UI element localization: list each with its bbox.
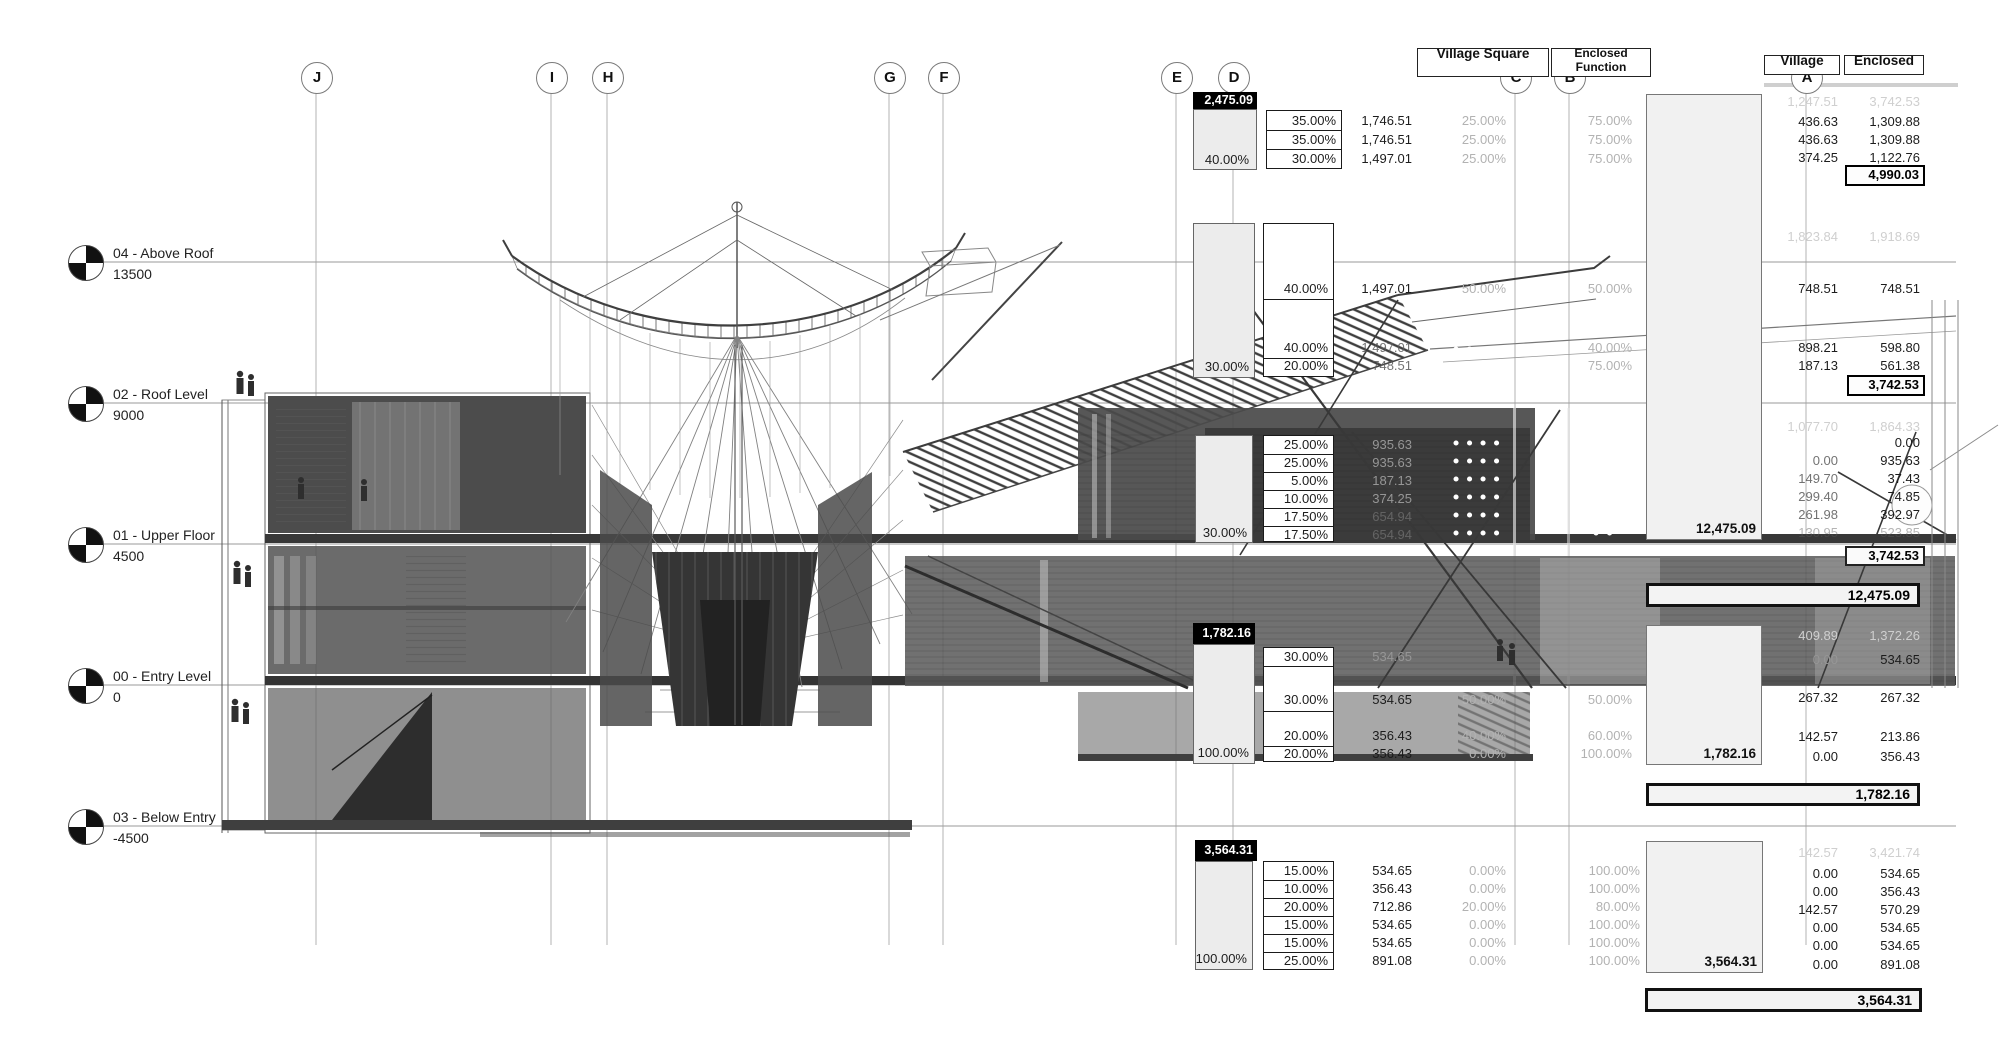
value-cell-occluded: 935.63 — [1322, 437, 1412, 452]
header-village-square: Village Square — [1417, 48, 1549, 77]
column-total: 12,475.09 — [1696, 521, 1756, 536]
header-label: Enclosed Function — [1552, 48, 1650, 74]
pct-cell: 40.00% — [1240, 281, 1328, 296]
header-enclosed-function: Enclosed Function — [1551, 48, 1651, 77]
right-value: 534.65 — [1830, 938, 1920, 953]
pct-cell: 20.00% — [1240, 358, 1328, 373]
faint-subtotal: 3,421.74 — [1830, 845, 1920, 860]
faded-pct: 50.00% — [1542, 281, 1632, 296]
grand-total-box: 1,782.16 — [1646, 783, 1920, 806]
level-head-icon — [68, 386, 104, 422]
right-value: 534.65 — [1830, 866, 1920, 881]
faded-pct: 25.00% — [1416, 113, 1506, 128]
section-view: J I H G F E D C B A 04 - Above Roof 1350… — [0, 0, 2000, 1055]
column-total: 1,782.16 — [1703, 746, 1756, 761]
value-cell: 534.65 — [1322, 692, 1412, 707]
faded-pct: 75.00% — [1542, 113, 1632, 128]
right-value: 267.32 — [1830, 690, 1920, 705]
value-cell: 356.43 — [1322, 746, 1412, 761]
right-value: 561.38 — [1830, 358, 1920, 373]
value-cell-occluded: 534.65 — [1322, 649, 1412, 664]
right-value: 1,309.88 — [1830, 114, 1920, 129]
pct-cell: 5.00% — [1240, 473, 1328, 488]
value-cell: 712.86 — [1322, 899, 1412, 914]
subtotal-box: 3,742.53 — [1845, 546, 1925, 566]
value-cell: 356.43 — [1322, 728, 1412, 743]
level-head-icon — [68, 527, 104, 563]
gray-pct: 100.00% — [1159, 745, 1249, 760]
pct-cell: 15.00% — [1240, 863, 1328, 878]
right-value: 598.80 — [1830, 340, 1920, 355]
faded-pct: 100.00% — [1550, 935, 1640, 950]
pct-cell: 10.00% — [1240, 491, 1328, 506]
grand-total-box: 3,564.31 — [1645, 988, 1922, 1012]
value-cell: 1,497.01 — [1322, 151, 1412, 166]
right-value: 0.00 — [1830, 435, 1920, 450]
area-total-cell: 2,475.09 — [1193, 92, 1257, 109]
value-cell-occluded: 748.51 — [1322, 358, 1412, 373]
value-cell-occluded: 935.63 — [1322, 455, 1412, 470]
level-name: 03 - Below Entry — [113, 809, 216, 825]
faded-pct: 20.00% — [1416, 899, 1506, 914]
level-elevation: 0 — [113, 689, 121, 705]
total-box: 3,742.53 — [1847, 375, 1925, 396]
grid-bubble-f: F — [928, 62, 960, 94]
row-divider — [1264, 711, 1333, 712]
level-name: 04 - Above Roof — [113, 245, 213, 261]
level-name: 02 - Roof Level — [113, 386, 208, 402]
faded-pct: 0.00% — [1416, 881, 1506, 896]
right-value: 1,122.76 — [1830, 150, 1920, 165]
faded-pct: 0.00% — [1416, 863, 1506, 878]
left-building — [222, 393, 590, 833]
value-cell: 1,746.51 — [1322, 113, 1412, 128]
area-column-box: 3,564.31 — [1646, 841, 1763, 973]
pct-cell: 17.50% — [1240, 509, 1328, 524]
faded-pct: 0.00% — [1416, 953, 1506, 968]
header-label: Enclosed — [1845, 55, 1923, 68]
gray-pct: 30.00% — [1159, 359, 1249, 374]
right-value: 37.43 — [1830, 471, 1920, 486]
faded-pct: 80.00% — [1550, 899, 1640, 914]
faded-pct: 100.00% — [1550, 881, 1640, 896]
area-column-box: 12,475.09 — [1646, 94, 1762, 540]
faded-pct: 75.00% — [1542, 132, 1632, 147]
column-total: 3,564.31 — [1704, 954, 1757, 969]
faint-subtotal: 1,918.69 — [1830, 229, 1920, 244]
level-name: 00 - Entry Level — [113, 668, 211, 684]
faded-pct: 100.00% — [1550, 917, 1640, 932]
right-value: 891.08 — [1830, 957, 1920, 972]
pct-cell: 15.00% — [1240, 935, 1328, 950]
value-cell: 534.65 — [1322, 935, 1412, 950]
row-divider — [1267, 130, 1341, 131]
faded-pct: 40.00% — [1416, 728, 1506, 743]
faded-pct: 40.00% — [1542, 340, 1632, 355]
right-value: 534.65 — [1830, 920, 1920, 935]
right-value: 74.85 — [1830, 489, 1920, 504]
row-divider — [1267, 149, 1341, 150]
faded-pct: 100.00% — [1550, 953, 1640, 968]
value-cell-occluded: 1,497.01 — [1322, 340, 1412, 355]
value-cell: 891.08 — [1322, 953, 1412, 968]
level-head-icon — [68, 809, 104, 845]
value-cell: 534.65 — [1322, 863, 1412, 878]
right-value: 213.86 — [1830, 729, 1920, 744]
faded-pct: 75.00% — [1542, 151, 1632, 166]
pct-cell: 40.00% — [1240, 340, 1328, 355]
grid-bubble-i: I — [536, 62, 568, 94]
pct-cell: 25.00% — [1240, 455, 1328, 470]
level-name: 01 - Upper Floor — [113, 527, 215, 543]
value-cell: 534.65 — [1322, 917, 1412, 932]
faded-pct: 50.00% — [1542, 692, 1632, 707]
header-label: Village Square — [1418, 48, 1548, 61]
pct-cell: 30.00% — [1240, 692, 1328, 707]
faded-pct: 60.00% — [1542, 728, 1632, 743]
faded-pct: 75.00% — [1542, 358, 1632, 373]
pct-cell: 15.00% — [1240, 917, 1328, 932]
pct-cell: 30.00% — [1240, 649, 1328, 664]
area-total-cell: 1,782.16 — [1193, 623, 1255, 644]
level-elevation: 13500 — [113, 266, 152, 282]
right-value: 1,309.88 — [1830, 132, 1920, 147]
faded-pct: 50.00% — [1416, 281, 1506, 296]
right-value: 570.29 — [1830, 902, 1920, 917]
right-value: 534.65 — [1830, 652, 1920, 667]
faded-pct: 0.00% — [1416, 917, 1506, 932]
level-elevation: 9000 — [113, 407, 144, 423]
level-elevation: -4500 — [113, 830, 149, 846]
level-head-icon — [68, 245, 104, 281]
grid-bubble-j: J — [301, 62, 333, 94]
right-value: 935.63 — [1830, 453, 1920, 468]
grid-bubble-h: H — [592, 62, 624, 94]
right-value: 356.43 — [1830, 884, 1920, 899]
gray-pct: 30.00% — [1157, 525, 1247, 540]
faded-pct: 25.00% — [1416, 151, 1506, 166]
pct-cell: 25.00% — [1240, 437, 1328, 452]
right-value: 356.43 — [1830, 749, 1920, 764]
area-column-box: 1,782.16 — [1646, 625, 1762, 765]
value-cell-occluded: 187.13 — [1322, 473, 1412, 488]
area-total-cell: 3,564.31 — [1195, 840, 1257, 861]
grid-bubble-g: G — [874, 62, 906, 94]
value-cell-occluded: 654.94 — [1322, 527, 1412, 542]
faint-subtotal: 3,742.53 — [1830, 94, 1920, 109]
level-elevation: 4500 — [113, 548, 144, 564]
total-box: 4,990.03 — [1845, 165, 1925, 186]
faded-pct: 50.00% — [1416, 692, 1506, 707]
faded-pct: 0.00% — [1416, 746, 1506, 761]
value-cell: 1,497.01 — [1322, 281, 1412, 296]
faded-pct: 25.00% — [1416, 132, 1506, 147]
header-village: Village — [1764, 55, 1840, 75]
value-cell: 1,746.51 — [1322, 132, 1412, 147]
pct-cell: 25.00% — [1240, 953, 1328, 968]
value-cell-occluded: 374.25 — [1322, 491, 1412, 506]
faint-subtotal: 1,864.33 — [1830, 419, 1920, 434]
pct-cell: 10.00% — [1240, 881, 1328, 896]
row-divider — [1264, 299, 1333, 300]
gray-pct: 100.00% — [1157, 951, 1247, 966]
faded-pct: 100.00% — [1550, 863, 1640, 878]
right-value: 523.85 — [1830, 525, 1920, 540]
faint-subtotal: 1,372.26 — [1830, 628, 1920, 643]
right-value: 748.51 — [1830, 281, 1920, 296]
grand-total-box: 12,475.09 — [1646, 583, 1920, 607]
value-cell-occluded: 654.94 — [1322, 509, 1412, 524]
header-label: Village — [1765, 55, 1839, 68]
header-enclosed: Enclosed — [1844, 55, 1924, 75]
level-head-icon — [68, 668, 104, 704]
pct-cell: 17.50% — [1240, 527, 1328, 542]
grid-bubble-e: E — [1161, 62, 1193, 94]
gray-pct: 40.00% — [1159, 152, 1249, 167]
pct-cell: 20.00% — [1240, 728, 1328, 743]
pct-cell: 20.00% — [1240, 746, 1328, 761]
faded-pct: 100.00% — [1542, 746, 1632, 761]
grid-bubble-d: D — [1218, 62, 1250, 94]
right-value: 392.97 — [1830, 507, 1920, 522]
faded-pct: 0.00% — [1416, 935, 1506, 950]
row-divider — [1264, 666, 1333, 667]
value-cell: 356.43 — [1322, 881, 1412, 896]
pct-cell: 20.00% — [1240, 899, 1328, 914]
